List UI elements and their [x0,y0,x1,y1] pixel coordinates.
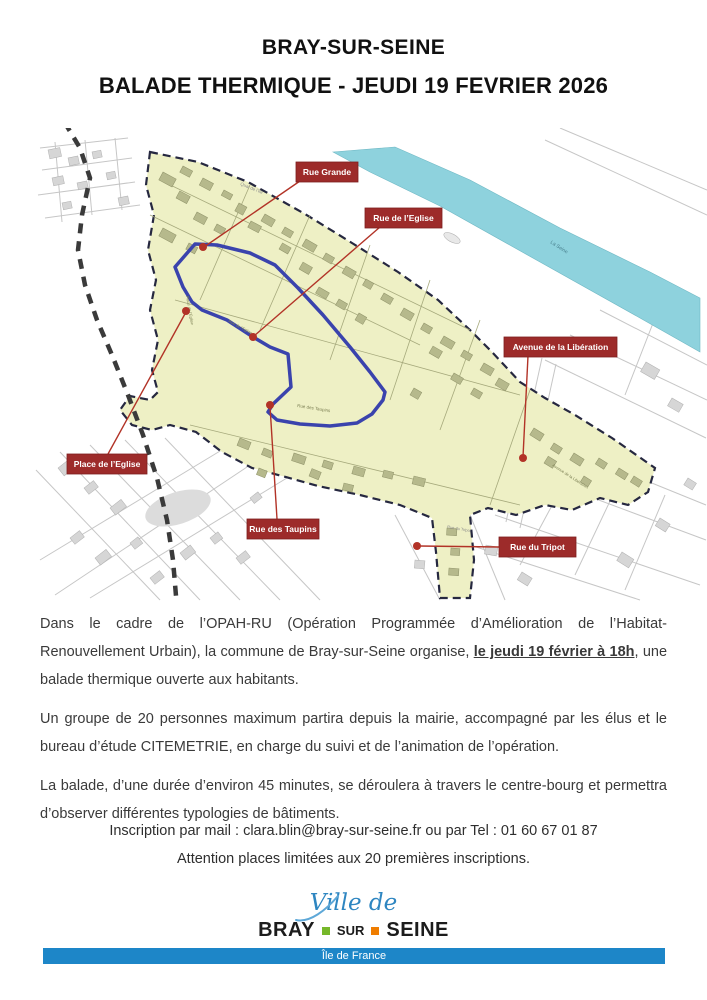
body-text: Dans le cadre de l’OPAH-RU (Opération Pr… [40,610,667,839]
logo-sur: SUR [337,923,364,938]
p1-date-emphasis: le jeudi 19 février à 18h [474,644,635,660]
contact-line-email: Inscription par mail : clara.blin@bray-s… [0,817,707,845]
city-logo: Ville de BRAY SUR SEINE Île de France [0,890,707,964]
callout-dot [182,307,190,315]
contact-block: Inscription par mail : clara.blin@bray-s… [0,817,707,873]
callout-dot [519,454,527,462]
callout-label: Place de l’Eglise [74,459,141,469]
page-title: BRAY-SUR-SEINE BALADE THERMIQUE - JEUDI … [0,36,707,99]
logo-seine: SEINE [386,919,449,942]
paragraph-1: Dans le cadre de l’OPAH-RU (Opération Pr… [40,610,667,694]
flyer-page: BRAY-SUR-SEINE BALADE THERMIQUE - JEUDI … [0,0,707,1000]
green-square-icon [322,927,330,935]
callout-dot [413,542,421,550]
callout-label: Rue des Taupins [249,524,317,534]
callout-label: Avenue de la Libération [513,342,609,352]
orange-square-icon [371,927,379,935]
callout-label: Rue du Tripot [510,542,565,552]
callout-dot [266,401,274,409]
callout-label: Rue de l’Eglise [373,213,434,223]
town-map: Quai de l’IleLa SeinePlace de l’EgliseRu… [0,128,707,602]
contact-line-places: Attention places limitées aux 20 premièr… [0,845,707,873]
logo-city-name: BRAY SUR SEINE [0,919,707,942]
callout-dot [199,243,207,251]
title-event: BALADE THERMIQUE - JEUDI 19 FEVRIER 2026 [0,73,707,99]
title-city: BRAY-SUR-SEINE [0,36,707,60]
region-bar: Île de France [43,948,665,964]
callout-line [419,546,499,547]
paragraph-2: Un groupe de 20 personnes maximum partir… [40,705,667,761]
logo-script-text: Ville de [0,890,707,917]
map-container: Quai de l’IleLa SeinePlace de l’EgliseRu… [0,128,707,602]
callout-dot [249,333,257,341]
logo-swoosh-icon [292,892,352,924]
callout-label: Rue Grande [303,167,351,177]
river-island [442,230,462,246]
